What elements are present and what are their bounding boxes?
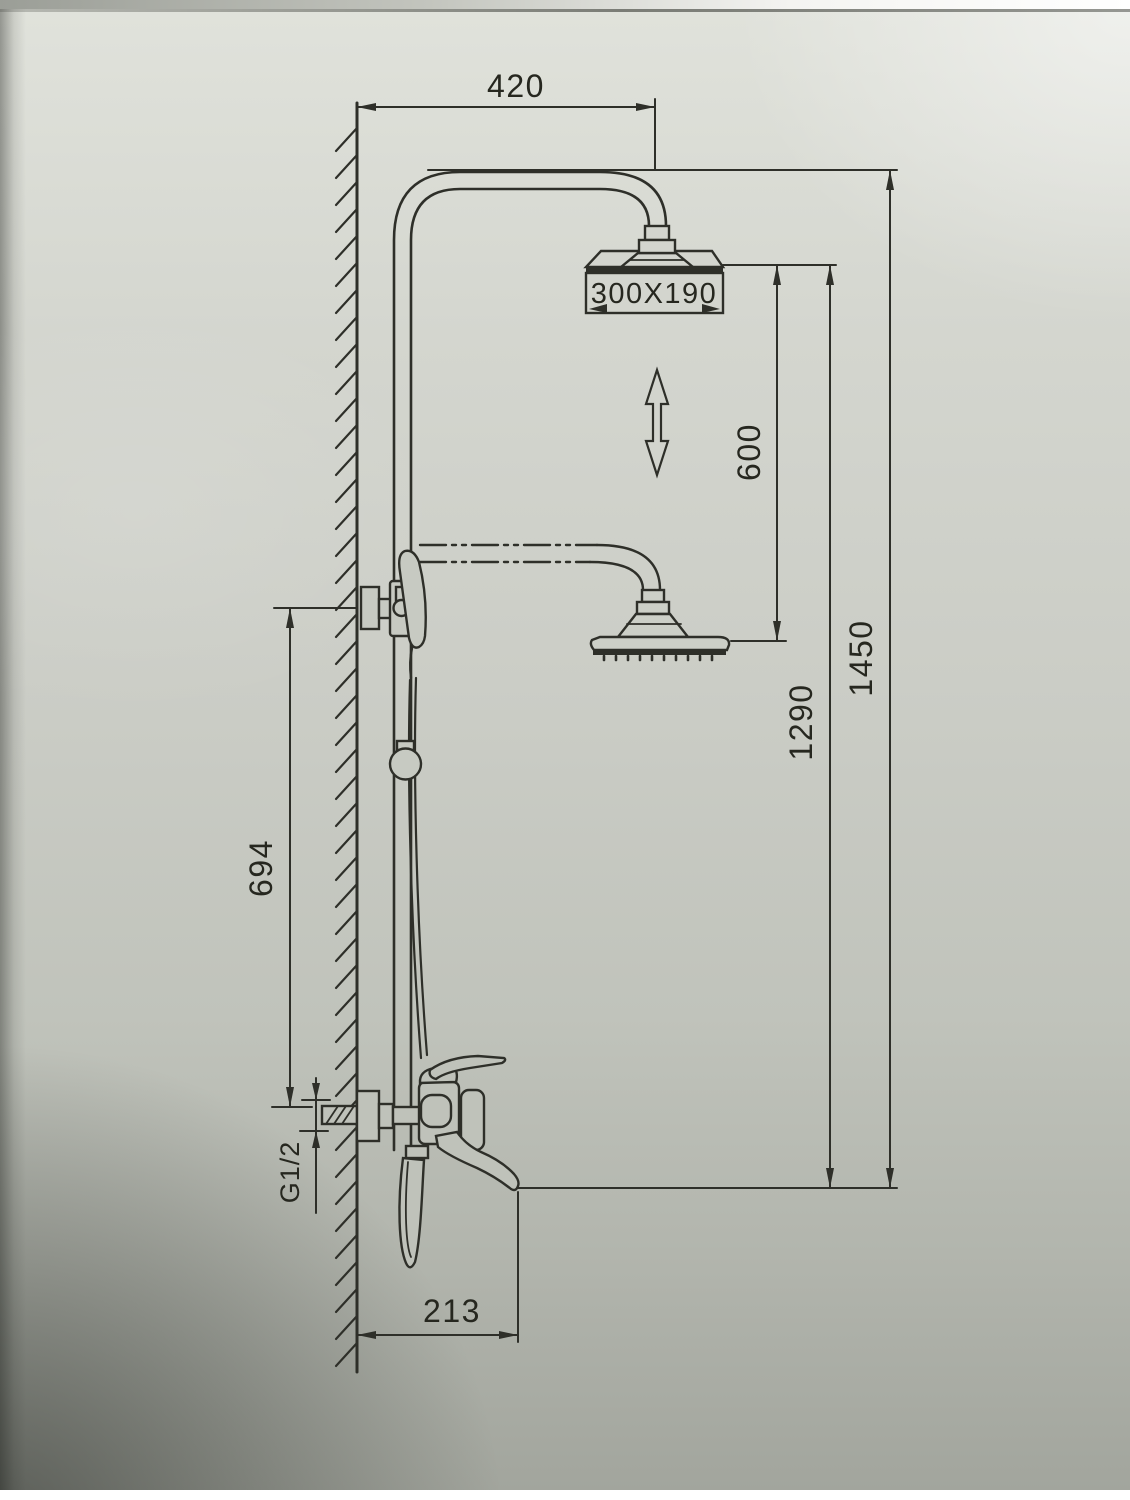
wall-section bbox=[336, 103, 357, 1372]
riser-pipe bbox=[394, 172, 666, 1150]
cartridge-dome bbox=[421, 1095, 451, 1127]
dim-694-label: 694 bbox=[243, 839, 279, 897]
dim-1290-label: 1290 bbox=[783, 683, 819, 760]
dim-1450-label: 1450 bbox=[843, 619, 879, 696]
height-adjust-arrow-icon bbox=[646, 370, 668, 475]
hanging-hose-loop bbox=[399, 1158, 424, 1267]
wall-escutcheon bbox=[357, 1091, 379, 1141]
dim-1450 bbox=[886, 170, 894, 1188]
spray-nozzle-ticks bbox=[604, 656, 712, 660]
hose-nut bbox=[406, 1146, 428, 1158]
dim-420-label: 420 bbox=[487, 68, 545, 104]
mixer-lever-handle bbox=[430, 1056, 506, 1079]
overhead-shower-lowered-position bbox=[420, 545, 729, 660]
dim-1290 bbox=[826, 265, 834, 1188]
dim-g12-label: G1/2 bbox=[275, 1141, 305, 1204]
dim-420 bbox=[357, 99, 655, 170]
technical-drawing: 300X190 bbox=[0, 0, 1130, 1500]
dim-213-label: 213 bbox=[423, 1293, 481, 1329]
wall-hatch-marks bbox=[336, 128, 357, 1366]
dim-head-size-label: 300X190 bbox=[591, 278, 718, 310]
dim-600-label: 600 bbox=[731, 423, 767, 481]
photographed-catalog-page: 300X190 bbox=[0, 0, 1130, 1500]
